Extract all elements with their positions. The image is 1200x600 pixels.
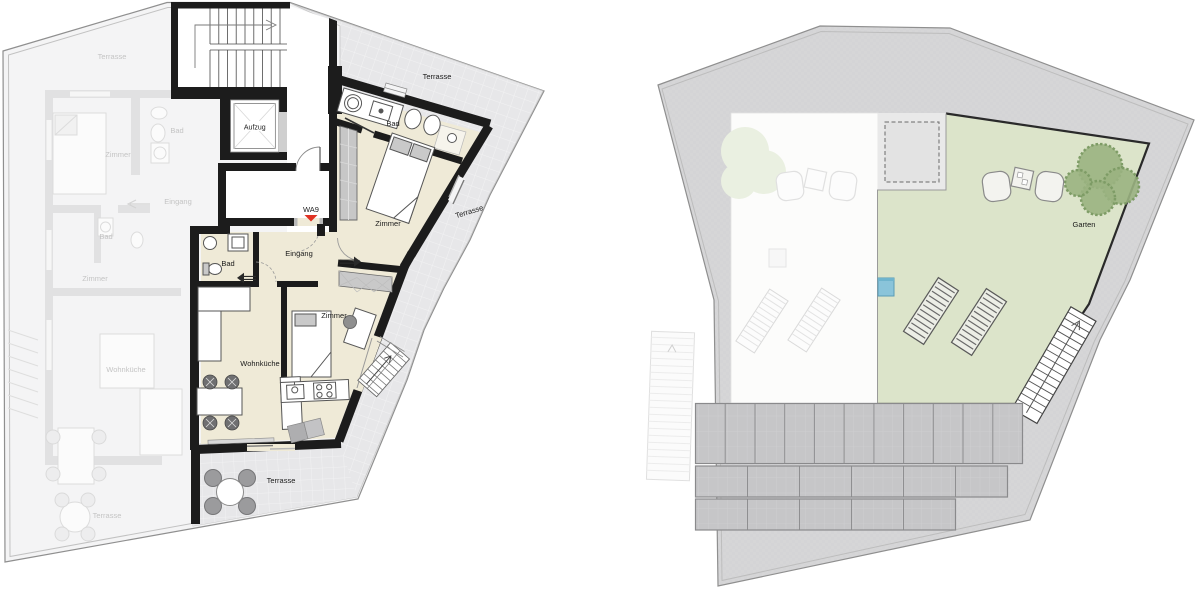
svg-text:Terrasse: Terrasse [423, 72, 452, 81]
svg-text:Bad: Bad [170, 126, 183, 135]
svg-text:Aufzug: Aufzug [244, 125, 266, 132]
svg-text:Zimmer: Zimmer [375, 219, 401, 228]
svg-text:Eingang: Eingang [285, 249, 313, 258]
svg-text:Bad: Bad [386, 119, 399, 128]
svg-text:Bad: Bad [221, 259, 234, 268]
svg-text:Terrasse: Terrasse [267, 476, 296, 485]
svg-text:Zimmer: Zimmer [82, 274, 108, 283]
svg-text:Garten: Garten [1073, 220, 1096, 229]
svg-text:WA9: WA9 [303, 205, 319, 214]
svg-text:Zimmer: Zimmer [105, 150, 131, 159]
svg-text:Wohnküche: Wohnküche [240, 359, 279, 368]
svg-text:Eingang: Eingang [164, 197, 192, 206]
svg-text:Terrasse: Terrasse [93, 511, 122, 520]
svg-text:Zimmer: Zimmer [321, 311, 347, 320]
svg-text:Bad: Bad [99, 232, 112, 241]
svg-text:Terrasse: Terrasse [98, 52, 127, 61]
svg-text:Wohnküche: Wohnküche [106, 365, 145, 374]
